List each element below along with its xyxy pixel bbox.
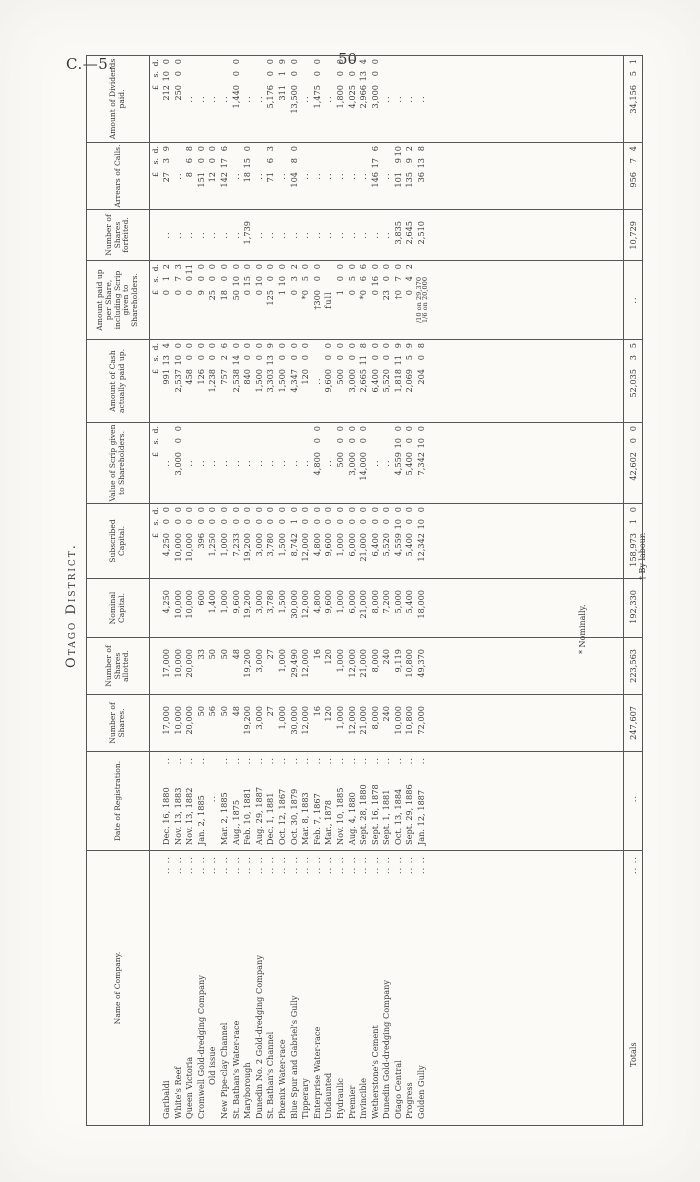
cell-arrears: .. — [173, 143, 185, 210]
money-value: 2,665118 — [358, 340, 370, 422]
money-value: 6,40000 — [370, 504, 382, 578]
money-value: 1,44000 — [231, 56, 243, 142]
cell-text: .. — [393, 56, 405, 142]
money-value: 10,00000 — [184, 504, 196, 578]
table-title: Otago District. — [64, 83, 82, 1128]
cell-per_share: 2500 — [207, 261, 219, 340]
cell-text: 2,538 — [231, 369, 243, 422]
cell-text: 0 — [265, 519, 277, 533]
cell-forfeited: .. — [231, 210, 243, 261]
cell-text: 9,600 — [323, 369, 335, 422]
cell-forfeited: .. — [335, 210, 347, 261]
cell-text: 0 — [347, 423, 359, 438]
cell-text: .. .. — [347, 851, 359, 874]
cell-text: 6 — [358, 276, 370, 290]
cell-text: 34,156 — [624, 85, 642, 142]
company-row: St. Bathan's Water-race.. ..Aug., 1875..… — [231, 56, 243, 1126]
cell-text: Blue Spur and Gabriel's Gully — [289, 996, 299, 1119]
money-value: 50000 — [335, 340, 347, 422]
cell-text: 2,645 — [404, 210, 416, 260]
cell-text: .. — [624, 752, 642, 845]
company-row: Phœnix Water-race.. ..Oct. 12, 1867..1,0… — [277, 56, 289, 1126]
cell-text: 0 — [404, 423, 416, 438]
company-row: Blue Spur and Gabriel's Gully.. ..Oct. 3… — [289, 56, 301, 1126]
cell-subscribed: 7,23300 — [231, 504, 243, 579]
cell-name: Otago Central.. .. — [393, 851, 405, 1126]
cell-nominal: 19,200 — [242, 579, 254, 638]
cell-subscribed: 9,60000 — [323, 504, 335, 579]
money-value: 25000 — [173, 56, 185, 142]
cell-name: St. Bathan's Water-race.. .. — [231, 851, 243, 1126]
cell-text: 0 — [242, 519, 254, 533]
cell-allotted: 19,200 — [242, 638, 254, 695]
cell-text: 0 — [370, 71, 382, 85]
column-header-shares: Number of Shares. — [87, 695, 150, 752]
cell-text: .. — [242, 56, 254, 142]
cell-text: 0 — [323, 355, 335, 369]
cell-scrip: 4,80000 — [312, 423, 324, 504]
cell-text: 4 — [358, 56, 370, 71]
cell-text: 10 — [231, 276, 243, 290]
money-value: 0011 — [184, 261, 196, 339]
cell-name: Progress.. .. — [404, 851, 416, 1126]
cell-text: .. — [196, 210, 208, 260]
cell-nominal: 1,000 — [219, 579, 231, 638]
cell-nominal: 3,000 — [254, 579, 266, 638]
cell-text: Queen Victoria — [184, 1057, 194, 1119]
money-value: 7,342100 — [416, 423, 428, 503]
cell-text: 5,400 — [404, 533, 416, 578]
cell-text: 13 — [161, 355, 173, 369]
cell-dividends: .. — [300, 56, 312, 143]
cell-text: 0 — [173, 504, 185, 519]
cell-name: White's Reef.. .. — [173, 851, 185, 1126]
cell-text: Aug. 29, 1887 — [254, 787, 264, 845]
footnote-by-labour: † By labour. — [638, 533, 647, 580]
money-value: 3,00000 — [173, 423, 185, 503]
cell-text: 1,000 — [335, 533, 347, 578]
cell-text: .. — [370, 423, 382, 503]
cell-arrears: .. — [277, 143, 289, 210]
cell-text: Cromwell Gold-dredging Company — [196, 975, 206, 1119]
cell-text: 101 — [393, 172, 405, 209]
cell-text: 23 — [381, 290, 393, 339]
cell-text: 0 — [219, 276, 231, 290]
cell-text: 0 — [335, 71, 347, 85]
cell-text: 3,000 — [370, 85, 382, 142]
cell-text: 6,400 — [370, 369, 382, 422]
cell-text: 0 — [184, 355, 196, 369]
cell-text: 1,000 — [277, 695, 289, 751]
cell-cash: 1,50000 — [254, 340, 266, 423]
cell-text: 0 — [242, 143, 254, 158]
cell-text: .. — [347, 752, 359, 764]
cell-dividends: 4,02500 — [347, 56, 359, 143]
cell-text: 0 — [624, 423, 642, 438]
cell-text: 8 — [416, 340, 428, 355]
cell-text: .. — [207, 210, 219, 260]
money-value: 2,966134 — [358, 56, 370, 142]
money-value: 13592 — [404, 143, 416, 209]
cell-text: Mar. 8, 1883 — [300, 792, 310, 845]
cell-text: .. — [381, 210, 393, 260]
blank-cell — [428, 261, 624, 340]
cell-shares: 50 — [196, 695, 208, 752]
cell-dividends: 1,44000 — [231, 56, 243, 143]
cell-text: 20,000 — [184, 695, 196, 751]
cell-shares: 16 — [312, 695, 324, 752]
cell-dividends: 1,47500 — [312, 56, 324, 143]
cell-date: Dec. 16, 1880.. — [161, 752, 173, 851]
cell-text: Phœnix Water-race — [277, 1039, 287, 1119]
cell-shares: 20,000 — [184, 695, 196, 752]
cell-text: 0 — [358, 438, 370, 452]
cell-cash: 2,06959 — [404, 340, 416, 423]
cell-dividends: 3,00000 — [370, 56, 382, 143]
cell-text: .. — [300, 752, 312, 764]
cell-text: 0 — [161, 519, 173, 533]
cell-text: £ — [150, 85, 161, 142]
cell-dividends: 34,15651 — [624, 56, 643, 143]
cell-per_share: 0100 — [254, 261, 266, 340]
cell-text: 192,330 — [624, 579, 642, 637]
cell-subscribed: 3,78000 — [265, 504, 277, 579]
cell-text: 0 — [207, 158, 219, 172]
cell-text: £ — [150, 172, 161, 209]
cell-text: 19,200 — [242, 533, 254, 578]
cell-text: 0 — [381, 276, 393, 290]
cell-text: 0 — [347, 56, 359, 71]
cell-nominal: 21,000 — [358, 579, 370, 638]
cell-text: 4 — [624, 143, 642, 158]
cell-text: 1,250 — [207, 533, 219, 578]
cell-text: 13 — [416, 158, 428, 172]
cell-text: 1,000 — [335, 695, 347, 751]
cell-text: 0 — [312, 423, 324, 438]
money-value: †070 — [393, 261, 405, 339]
cell-nominal: 12,000 — [300, 579, 312, 638]
cell-text: .. .. — [161, 851, 173, 874]
cell-text: 0 — [312, 504, 324, 519]
cell-scrip: .. — [323, 423, 335, 504]
cell-text: 10 — [173, 355, 185, 369]
cell-text: Dec. 16, 1880 — [161, 787, 171, 845]
cell-subscribed: 5,40000 — [404, 504, 416, 579]
subheader-forfeited — [150, 210, 162, 261]
cell-text: 0 — [231, 340, 243, 355]
cell-date: Nov. 13, 1883.. — [173, 752, 185, 851]
cell-allotted: 240 — [381, 638, 393, 695]
cell-text: .. .. — [231, 851, 243, 874]
money-value: 10480 — [289, 143, 301, 209]
money-value: 12,342100 — [416, 504, 428, 578]
cell-text: 16 — [312, 695, 324, 751]
cell-name: Premier.. .. — [347, 851, 359, 1126]
cell-text: White's Reef — [173, 1067, 183, 1119]
money-value: *066 — [358, 261, 370, 339]
cell-text: .. — [184, 752, 196, 764]
cell-text: 0 — [381, 519, 393, 533]
cell-text: Premier — [347, 1086, 357, 1119]
cell-text: .. — [265, 752, 277, 764]
subheader-date — [150, 752, 162, 851]
cell-text: 0 — [381, 504, 393, 519]
cell-text: 8 — [416, 143, 428, 158]
cell-text: 0 — [358, 504, 370, 519]
money-value: 032 — [289, 261, 301, 339]
cell-text: 120 — [323, 695, 335, 751]
cell-text: 0 — [358, 519, 370, 533]
cell-arrears: 13592 — [404, 143, 416, 210]
cell-text: .. — [207, 56, 219, 142]
cell-text: .. — [416, 752, 428, 764]
cell-text: 1 — [161, 276, 173, 290]
blank-cell — [428, 695, 624, 752]
cell-arrears: 868 — [184, 143, 196, 210]
cell-text: 6,400 — [370, 533, 382, 578]
money-value: 1,50000 — [277, 504, 289, 578]
cell-shares: 3,000 — [254, 695, 266, 752]
cell-text: s. — [150, 355, 161, 369]
cell-text: 10,800 — [404, 638, 416, 694]
money-value: *050 — [300, 261, 312, 339]
cell-text: 10 — [393, 143, 405, 158]
money-value: 1,50000 — [277, 340, 289, 422]
cell-nominal: 10,000 — [173, 579, 185, 638]
cell-text: .. — [404, 752, 416, 764]
cell-text: 1,818 — [393, 369, 405, 422]
cell-text: 10 — [277, 276, 289, 290]
cell-text: 0 — [300, 261, 312, 276]
cell-cash: 991134 — [161, 340, 173, 423]
cell-dividends: .. — [184, 56, 196, 143]
cell-text: 56 — [207, 695, 219, 751]
cell-text: 0 — [323, 340, 335, 355]
money-value: 10,00000 — [173, 504, 185, 578]
cell-text: .. — [312, 143, 324, 209]
cell-text: 0 — [254, 290, 266, 339]
cell-cash: 3,00000 — [347, 340, 359, 423]
cell-text: New Pipe-clay Channel — [219, 1023, 229, 1119]
cell-text: 1,238 — [207, 369, 219, 422]
cell-text: 0 — [381, 261, 393, 276]
cell-text: 8,742 — [289, 533, 301, 578]
cell-text: 0 — [242, 504, 254, 519]
cell-name: Maryborough.. .. — [242, 851, 254, 1126]
blank-cell — [428, 143, 624, 210]
cell-nominal: 8,000 — [370, 579, 382, 638]
money-value: 042 — [404, 261, 416, 339]
cell-text: .. — [323, 752, 335, 764]
cell-date: Sept. 29, 1886.. — [404, 752, 416, 851]
cell-allotted: 3,000 — [254, 638, 266, 695]
cell-text: 4,347 — [289, 369, 301, 422]
money-value: 31119 — [277, 56, 289, 142]
cell-nominal: 30,000 — [289, 579, 301, 638]
cell-per_share: .. — [624, 261, 643, 340]
cell-text: 7 — [624, 158, 642, 172]
money-value: 1,23800 — [207, 340, 219, 422]
money-value: 012 — [161, 261, 173, 339]
cell-text: d. — [150, 423, 161, 438]
cell-scrip: 42,60200 — [624, 423, 643, 504]
cell-per_share: /10 on 29,370 1/6 on 20,000 — [416, 261, 428, 340]
cell-text: 1 — [277, 71, 289, 85]
cell-text: 1,800 — [335, 85, 347, 142]
cell-text: 0 — [335, 423, 347, 438]
cell-subscribed: 12,00000 — [300, 504, 312, 579]
cell-text: .. — [254, 423, 266, 503]
cell-text: .. — [219, 56, 231, 142]
cell-text: 0 — [265, 276, 277, 290]
cell-text: 1 — [624, 56, 642, 71]
cell-text: 9 — [161, 143, 173, 158]
cell-per_share: 1100 — [277, 261, 289, 340]
cell-text: 5,400 — [404, 452, 416, 503]
cell-subscribed: 39600 — [196, 504, 208, 579]
cell-subscribed: 1,00000 — [219, 504, 231, 579]
cell-text: 0 — [289, 355, 301, 369]
cell-dividends: .. — [416, 56, 428, 143]
cell-text: 1,440 — [231, 85, 243, 142]
money-value: 18150 — [242, 143, 254, 209]
cell-text: 0 — [173, 290, 185, 339]
cell-text: 0 — [231, 519, 243, 533]
cell-text: 72,000 — [416, 695, 428, 751]
money-value: 95674 — [624, 143, 642, 209]
cell-text: 4,559 — [393, 452, 405, 503]
cell-cash: 1,818119 — [393, 340, 405, 423]
cell-nominal: 9,600 — [231, 579, 243, 638]
cell-text: 0 — [207, 355, 219, 369]
cell-text: 21,000 — [358, 579, 370, 637]
cell-text: 8,000 — [370, 638, 382, 694]
cell-text: 0 — [393, 423, 405, 438]
cell-text: .. — [335, 210, 347, 260]
cell-per_share: 0011 — [184, 261, 196, 340]
money-value: 050 — [347, 261, 359, 339]
cell-text: 3 — [289, 276, 301, 290]
cell-text: 3,303 — [265, 369, 277, 422]
cell-allotted: 16 — [312, 638, 324, 695]
cell-text: 10 — [393, 438, 405, 452]
cell-text: 0 — [347, 504, 359, 519]
cell-scrip: 3,00000 — [347, 423, 359, 504]
cell-text: †0 — [393, 290, 405, 339]
cell-text: 3 — [265, 143, 277, 158]
cell-text: 1,500 — [254, 369, 266, 422]
money-subheader: £s.d. — [150, 423, 161, 503]
cell-arrears: 36138 — [416, 143, 428, 210]
cell-per_share: *050 — [300, 261, 312, 340]
cell-text: 0 — [404, 438, 416, 452]
money-value: 2300 — [381, 261, 393, 339]
cell-text: 146 — [370, 172, 382, 209]
cell-dividends: .. — [207, 56, 219, 143]
cell-text: Jan. 2, 1885 — [196, 795, 206, 845]
cell-text: 0 — [242, 261, 254, 276]
money-value: 2,537100 — [173, 340, 185, 422]
cell-text: 204 — [416, 369, 428, 422]
cell-text: 1,500 — [277, 533, 289, 578]
cell-name: Old issue.. .. — [207, 851, 219, 1126]
cell-text: .. — [358, 752, 370, 764]
cell-text: 6 — [265, 158, 277, 172]
money-value: 42,60200 — [624, 423, 642, 503]
money-value: 14,00000 — [358, 423, 370, 503]
cell-text: 0 — [265, 261, 277, 276]
cell-date: Oct. 30, 1879.. — [289, 752, 301, 851]
cell-forfeited: .. — [184, 210, 196, 261]
cell-text: 36 — [416, 172, 428, 209]
cell-text: 0 — [381, 340, 393, 355]
cell-date: Feb. 10, 1881.. — [242, 752, 254, 851]
cell-text: 3 — [624, 355, 642, 369]
cell-text: Feb. 10, 1881 — [242, 788, 252, 845]
cell-text: 27 — [265, 638, 277, 694]
cell-nominal: 1,000 — [335, 579, 347, 638]
cell-text: 8 — [184, 143, 196, 158]
cell-text: 10,000 — [184, 533, 196, 578]
money-value: 100 — [335, 261, 347, 339]
cell-text: 8,000 — [370, 695, 382, 751]
cell-text: 7 — [393, 276, 405, 290]
cell-cash: 2,538140 — [231, 340, 243, 423]
cell-text: 2,665 — [358, 369, 370, 422]
company-row: Dunedin No. 2 Gold-dredging Company.. ..… — [254, 56, 266, 1126]
cell-text: 956 — [624, 172, 642, 209]
cell-scrip: 50000 — [335, 423, 347, 504]
cell-text: .. — [381, 752, 393, 764]
cell-text: .. .. — [335, 851, 347, 874]
cell-text: 0 — [196, 158, 208, 172]
cell-text: 5,520 — [381, 369, 393, 422]
cell-text: .. — [231, 752, 243, 764]
money-value: 1100 — [277, 261, 289, 339]
cell-date: Sept. 16, 1878.. — [370, 752, 382, 851]
cell-text: 3 — [173, 261, 185, 276]
cell-text: .. .. — [277, 851, 289, 874]
money-value: 12500 — [265, 261, 277, 339]
money-value: 50000 — [335, 423, 347, 503]
cell-per_share: 50100 — [231, 261, 243, 340]
cell-text: 30,000 — [289, 695, 301, 751]
cell-text: Undaunted — [323, 1073, 333, 1119]
cell-text: 4,025 — [347, 85, 359, 142]
cell-date: Aug., 1875.. — [231, 752, 243, 851]
cell-per_share: 012 — [161, 261, 173, 340]
cell-text: 0 — [196, 340, 208, 355]
cell-text: .. — [173, 210, 185, 260]
cell-text: 0 — [196, 355, 208, 369]
cell-text: .. — [624, 261, 642, 339]
cell-text: 0 — [277, 340, 289, 355]
cell-text: 5,400 — [404, 579, 416, 637]
blank-cell — [428, 638, 624, 695]
cell-arrears: .. — [358, 143, 370, 210]
cell-nominal: 3,780 — [265, 579, 277, 638]
cell-text: .. — [219, 423, 231, 503]
cell-arrears: 101910 — [393, 143, 405, 210]
cell-scrip: .. — [265, 423, 277, 504]
cell-text: .. .. — [265, 851, 277, 874]
cell-text: 5,000 — [393, 579, 405, 637]
cell-text: 0 — [161, 56, 173, 71]
cell-arrears: 15100 — [196, 143, 208, 210]
cell-text: 0 — [347, 261, 359, 276]
cell-date: Sept. 1, 1881.. — [381, 752, 393, 851]
cell-date: Oct. 12, 1867.. — [277, 752, 289, 851]
